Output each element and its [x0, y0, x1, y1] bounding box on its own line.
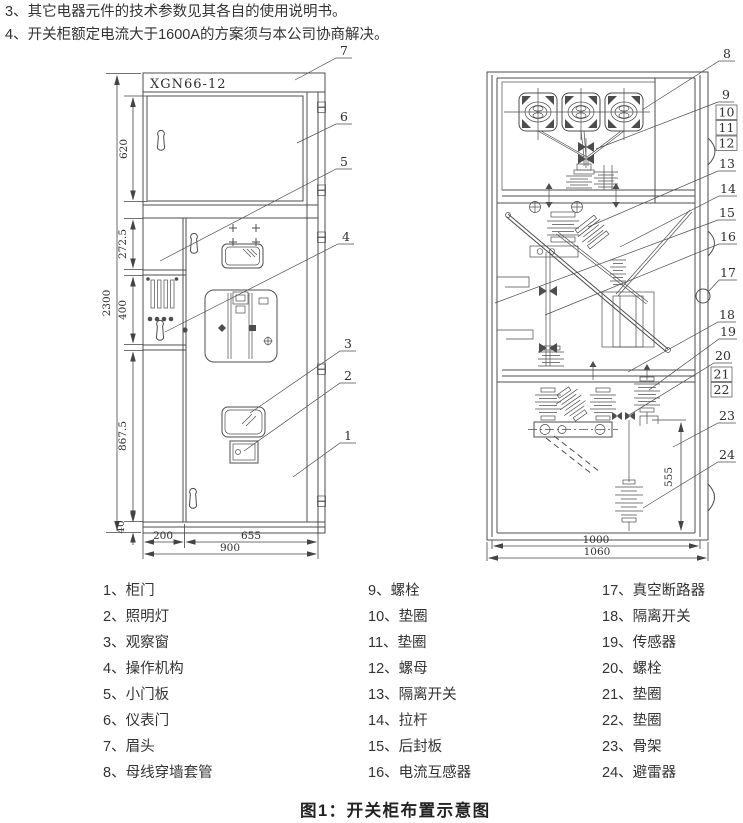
front-callouts: 7 6 5 4 3 2 1: [160, 43, 356, 477]
lower-bolts: [612, 412, 658, 426]
legend-item: 16、电流互感器: [368, 760, 471, 786]
dim-1060: 1060: [584, 546, 611, 558]
upper-disconnect-switch: [530, 212, 610, 257]
svg-text:18: 18: [719, 307, 735, 322]
mechanism-panel: [205, 290, 277, 362]
svg-text:23: 23: [719, 408, 735, 423]
legend-item: 5、小门板: [103, 682, 213, 708]
svg-text:8: 8: [723, 46, 731, 61]
observation-window: [222, 407, 265, 437]
dim-272-5: 272.5: [117, 229, 129, 259]
callout-21: 21: [711, 367, 732, 382]
model-label: XGN66-12: [150, 77, 227, 92]
instrument-door: [147, 96, 303, 201]
svg-text:20: 20: [715, 348, 731, 363]
middle-section: [190, 224, 263, 268]
svg-text:5: 5: [340, 154, 348, 169]
svg-text:4: 4: [342, 229, 350, 244]
legend-item: 23、骨架: [602, 734, 705, 760]
legend-item: 8、母线穿墙套管: [103, 760, 213, 786]
legend-column-3: 17、真空断路器 18、隔离开关 19、传感器 20、螺栓 21、垫圈 22、垫…: [602, 578, 705, 786]
legend-item: 2、照明灯: [103, 604, 213, 630]
svg-text:21: 21: [714, 367, 730, 382]
legend-item: 18、隔离开关: [602, 604, 705, 630]
callout-23: 23: [673, 408, 736, 447]
dim-2300: 2300: [101, 290, 113, 317]
legend-item: 14、拉杆: [368, 708, 471, 734]
svg-text:11: 11: [719, 120, 735, 135]
legend-item: 17、真空断路器: [602, 578, 705, 604]
callout-2: 2: [244, 368, 356, 451]
svg-text:15: 15: [719, 205, 735, 220]
svg-text:22: 22: [714, 382, 730, 397]
legend-item: 10、垫圈: [368, 604, 471, 630]
dim-620: 620: [118, 139, 130, 159]
figure-caption: 图1：开关柜布置示意图: [300, 797, 491, 821]
legend-item: 12、螺母: [368, 656, 471, 682]
sensor: [634, 377, 660, 424]
legend-item: 21、垫圈: [602, 682, 705, 708]
callout-10: 10: [716, 105, 737, 120]
front-view-drawing: XGN66-12: [96, 45, 360, 560]
pull-rod: [506, 210, 693, 353]
side-view-drawing: 555 1000 1060 8 9 10 11 12 13 14 15 16 1…: [480, 45, 743, 560]
dim-900: 900: [220, 542, 240, 554]
svg-text:10: 10: [719, 105, 735, 120]
callout-11: 11: [716, 120, 737, 135]
legend-item: 4、操作机构: [103, 656, 213, 682]
dim-40: 40: [115, 520, 127, 533]
svg-text:17: 17: [720, 265, 736, 280]
legend-item: 7、眉头: [103, 734, 213, 760]
dim-200: 200: [153, 530, 173, 542]
support-insulator: [566, 164, 618, 190]
note-line-4: 4、开关柜额定电流大于1600A的方案须与本公司协商解决。: [5, 24, 389, 47]
arrester: [615, 420, 643, 531]
svg-text:1: 1: [344, 428, 352, 443]
svg-text:19: 19: [720, 324, 736, 339]
legend-column-2: 9、螺栓 10、垫圈 11、垫圈 12、螺母 13、隔离开关 14、拉杆 15、…: [368, 578, 471, 786]
svg-text:24: 24: [719, 447, 735, 462]
front-dimensions: 2300 620 272.5 400 867.5 40 200 655 900: [101, 74, 318, 560]
legend-item: 19、传感器: [602, 630, 705, 656]
legend-item: 20、螺栓: [602, 656, 705, 682]
callout-12: 12: [716, 136, 737, 151]
callout-17: 17: [708, 265, 737, 292]
document-page: 3、其它电器元件的技术参数见其各自的使用说明书。 4、开关柜额定电流大于1600…: [0, 0, 743, 823]
legend-item: 11、垫圈: [368, 630, 471, 656]
dim-555: 555: [663, 467, 675, 487]
legend-item: 1、柜门: [103, 578, 213, 604]
legend-column-1: 1、柜门 2、照明灯 3、观察窗 4、操作机构 5、小门板 6、仪表门 7、眉头…: [103, 578, 213, 786]
shelf-bolts: [530, 183, 620, 213]
legend-item: 22、垫圈: [602, 708, 705, 734]
note-line-3: 3、其它电器元件的技术参数见其各自的使用说明书。: [5, 1, 389, 24]
callout-13: 13: [588, 156, 736, 227]
dim-655: 655: [241, 530, 261, 542]
legend-item: 9、螺栓: [368, 578, 471, 604]
breaker-assembly: [497, 252, 710, 366]
svg-text:12: 12: [719, 136, 735, 151]
callout-9: 9: [596, 87, 734, 149]
svg-text:7: 7: [340, 43, 348, 58]
svg-text:16: 16: [720, 229, 736, 244]
svg-text:9: 9: [722, 87, 730, 102]
dim-400: 400: [117, 300, 129, 320]
lower-keyhole: [189, 488, 196, 508]
lower-disconnect-switch: [528, 383, 618, 474]
callout-7: 7: [295, 43, 352, 80]
svg-text:13: 13: [719, 156, 735, 171]
dim-867-5: 867.5: [117, 421, 129, 451]
callout-22: 22: [711, 382, 732, 397]
door-hinges: [318, 102, 326, 507]
top-notes: 3、其它电器元件的技术参数见其各自的使用说明书。 4、开关柜额定电流大于1600…: [5, 1, 389, 47]
callout-3: 3: [250, 336, 356, 413]
svg-text:6: 6: [340, 109, 348, 124]
legend-item: 24、避雷器: [602, 760, 705, 786]
legend-item: 13、隔离开关: [368, 682, 471, 708]
legend-item: 3、观察窗: [103, 630, 213, 656]
svg-text:3: 3: [344, 336, 352, 351]
legend-item: 15、后封板: [368, 734, 471, 760]
callout-24: 24: [643, 447, 736, 508]
svg-text:14: 14: [720, 181, 736, 196]
svg-text:2: 2: [344, 368, 352, 383]
wall-bushings: [504, 88, 650, 166]
dim-1000: 1000: [583, 534, 610, 546]
legend-item: 6、仪表门: [103, 708, 213, 734]
